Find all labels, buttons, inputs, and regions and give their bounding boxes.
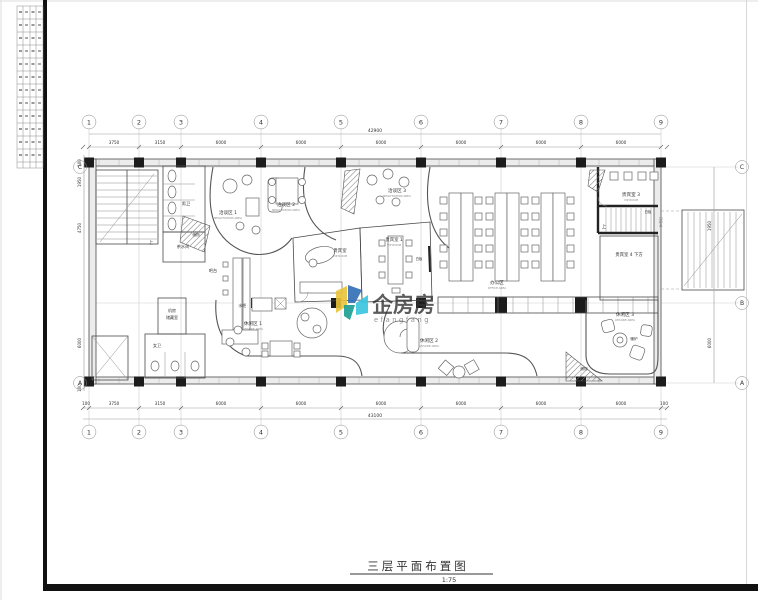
dim-bottom-segment: 6000 — [456, 401, 467, 406]
label-negotiation-2-en: NEGOTIATION AREA — [272, 208, 300, 212]
label-storage-a: 储物 — [192, 232, 200, 237]
grid-bubble-label: 6 — [419, 428, 423, 436]
elevator — [92, 336, 128, 380]
sheet-title-group: 三层平面布置图 1:75 — [350, 559, 493, 584]
wall-left — [89, 159, 96, 384]
grid-bubble-label: 4 — [259, 118, 263, 126]
title-block-text-mark — [32, 89, 35, 91]
title-block-text-mark — [32, 11, 35, 13]
label-vip-room-3-en: VIP ROOM — [624, 198, 639, 202]
dim-bottom-segment: 6000 — [376, 401, 387, 406]
title-block — [17, 6, 43, 168]
label-vip-room-1: 贵宾室 1 — [385, 236, 403, 243]
grid-bubble-label: 9 — [659, 428, 663, 436]
title-block-text-mark — [25, 154, 28, 156]
title-block-text-mark — [32, 115, 35, 117]
title-block-text-mark — [19, 50, 22, 52]
stair-left — [96, 170, 158, 244]
label-negotiation-3: 洽谈区 3 — [388, 187, 406, 194]
wall-top — [89, 159, 661, 166]
title-block-text-mark — [38, 141, 41, 143]
dim-right-0: 1950 — [707, 220, 712, 231]
title-block-text-mark — [32, 102, 35, 104]
row-bubble-a-left: A — [78, 380, 83, 387]
label-office-area: 办公区 — [490, 279, 504, 286]
title-block-text-mark — [38, 37, 41, 39]
title-block-text-mark — [19, 154, 22, 156]
title-block-text-mark — [19, 63, 22, 65]
title-block-text-mark — [38, 76, 41, 78]
dim-left-1: 1950 — [77, 176, 82, 187]
grid-bubble-label: 4 — [259, 428, 263, 436]
dim-top-segment: 6000 — [296, 140, 307, 145]
label-vip-room-1-en: VIP ROOM — [387, 243, 402, 247]
title-block-text-mark — [38, 115, 41, 117]
dim-bottom-segment: 3150 — [155, 401, 166, 406]
title-block-text-mark — [19, 141, 22, 143]
dim-bottom-segment: 3750 — [109, 401, 120, 406]
title-block-text-mark — [25, 102, 28, 104]
title-block-text-mark — [38, 154, 41, 156]
title-block-text-mark — [38, 128, 41, 130]
label-office-area-en: OFFICE AREA — [488, 286, 506, 290]
grid-bubble-label: 5 — [339, 428, 343, 436]
stair-annex — [661, 210, 744, 290]
title-block-text-mark — [32, 37, 35, 39]
title-block-text-mark — [25, 89, 28, 91]
label-leisure-3-en: LEISURE AREA — [615, 318, 635, 322]
female-toilet — [145, 334, 205, 378]
grid-bubble-label: 7 — [499, 428, 503, 436]
title-block-text-mark — [38, 63, 41, 65]
title-block-text-mark — [19, 11, 22, 13]
grid-bubble-label: 8 — [579, 118, 583, 126]
title-block-text-mark — [32, 76, 35, 78]
label-leisure-1: 休闲区 1 — [244, 320, 262, 327]
dim-top-segment: 6000 — [456, 140, 467, 145]
title-block-text-mark — [25, 37, 28, 39]
dim-top-segment: 6000 — [216, 140, 227, 145]
watermark: 企房房 efangfang — [336, 285, 435, 324]
planter-wedge — [341, 169, 360, 214]
title-block-text-mark — [19, 37, 22, 39]
label-storage-room: 储藏室 — [166, 314, 178, 320]
sheet-border-bottom — [43, 584, 758, 591]
label-tea-room: 茶水间 — [177, 243, 190, 250]
dim-bottom-total: 43100 — [368, 413, 382, 419]
dim-top-segment: 6000 — [536, 140, 547, 145]
title-block-text-mark — [38, 102, 41, 104]
label-vip-room: 贵宾室 — [333, 247, 347, 254]
dim-bottom-segment: 6000 — [536, 401, 547, 406]
grid-bubble-label: 3 — [179, 118, 183, 126]
floor-plan — [84, 158, 744, 387]
label-vip-room-en: VIP ROOM — [333, 254, 348, 258]
label-leisure-2-en: LEISURE AREA — [419, 344, 439, 348]
row-bubble-b-right: B — [740, 300, 744, 307]
title-block-text-mark — [32, 128, 35, 130]
dim-top-segment: 3150 — [155, 140, 166, 145]
grid-bubble-label: 1 — [87, 118, 91, 126]
label-up-1: 上 — [149, 239, 154, 246]
label-negotiation-2: 洽谈区 2 — [277, 201, 295, 208]
grid-bubble-label: 8 — [579, 428, 583, 436]
dim-left-3: 6000 — [77, 337, 82, 348]
title-block-text-mark — [32, 154, 35, 156]
title-block-text-mark — [25, 50, 28, 52]
title-block-text-mark — [19, 89, 22, 91]
sheet-border-left — [43, 0, 47, 591]
whiteboard — [429, 246, 430, 272]
drawing-viewer: { "sheet": { "title": "三层平面布置图", "scale"… — [0, 0, 758, 600]
watermark-logo-blade-teal — [344, 305, 355, 320]
title-block-text-mark — [38, 50, 41, 52]
label-vip-room-3: 贵宾室 3 — [622, 191, 640, 198]
grid-bubble-label: 1 — [87, 428, 91, 436]
dim-left-2: 4750 — [77, 222, 82, 233]
sheet-scale: 1:75 — [442, 576, 457, 584]
grid-bubble-label: 9 — [659, 118, 663, 126]
leisure-area-2 — [384, 318, 479, 378]
title-block-text-mark — [25, 63, 28, 65]
label-vip4-below: 贵宾室 4 下方 — [615, 251, 643, 258]
bar-counter — [222, 258, 286, 344]
label-fireplace: 暖炉 — [630, 336, 638, 341]
label-rest-area: 休憩区 — [658, 216, 663, 227]
grid-bubble-label: 6 — [419, 118, 423, 126]
dim-top-total: 42900 — [368, 128, 382, 134]
grid-bubble-label: 3 — [179, 428, 183, 436]
dim-bottom-segment: 6000 — [216, 401, 227, 406]
dim-bottom-segment: 100 — [82, 401, 90, 406]
row-bubble-c-left: C — [78, 164, 82, 171]
title-block-text-mark — [25, 128, 28, 130]
label-leisure-1-en: LEISURE AREA — [243, 327, 263, 331]
label-negotiation-3-en: NEGOTIATION AREA — [383, 194, 411, 198]
title-block-text-mark — [38, 11, 41, 13]
label-negotiation-1: 洽谈区 1 — [219, 209, 237, 216]
label-male-wc: 男卫 — [182, 201, 190, 207]
label-leisure-2: 休闲区 2 — [420, 337, 438, 344]
title-block-text-mark — [19, 115, 22, 117]
label-bar: 吧台 — [209, 267, 217, 274]
title-block-text-mark — [19, 76, 22, 78]
label-machine-room: 机房 — [168, 307, 176, 313]
title-block-text-mark — [32, 50, 35, 52]
title-block-text-mark — [25, 11, 28, 13]
watermark-brand-text: 企房房 — [371, 293, 435, 317]
title-block-text-mark — [32, 24, 35, 26]
grid-bubble-label: 7 — [499, 118, 503, 126]
label-leisure-3: 休闲区 3 — [616, 311, 634, 318]
label-negotiation-1-en: NEGOTIATION AREA — [214, 216, 242, 220]
dim-top-segment: 6000 — [616, 140, 627, 145]
watermark-sub-text: efangfang — [374, 316, 431, 324]
dim-right-1: 6000 — [707, 337, 712, 348]
title-block-text-mark — [25, 24, 28, 26]
grid-bubble-label: 2 — [137, 428, 141, 436]
dim-bottom-segment: 6000 — [296, 401, 307, 406]
label-whiteboard-2: 白板 — [645, 209, 652, 214]
grid-bubble-label: 2 — [137, 118, 141, 126]
negotiation-area-3 — [367, 169, 409, 206]
label-up-2: 上 — [602, 223, 607, 230]
title-block-text-mark — [38, 89, 41, 91]
title-block-text-mark — [38, 24, 41, 26]
dim-bottom-segment: 100 — [660, 401, 668, 406]
title-block-text-mark — [25, 141, 28, 143]
sheet-title: 三层平面布置图 — [367, 559, 469, 573]
grid-bubble-label: 5 — [339, 118, 343, 126]
row-bubble-c-right: C — [740, 164, 744, 171]
title-block-text-mark — [25, 76, 28, 78]
row-bubble-a-right: A — [740, 380, 745, 387]
label-whiteboard-1: 白板 — [416, 256, 423, 261]
title-block-text-mark — [19, 128, 22, 130]
title-block-text-mark — [19, 24, 22, 26]
floor-plan-sheet: 112233445566778899 375031506000600060006… — [0, 0, 758, 600]
label-storage-b: 储物 — [580, 366, 588, 371]
dim-bottom-segment: 6000 — [616, 401, 627, 406]
label-water-bar: 水吧 — [238, 303, 246, 308]
title-block-text-mark — [19, 102, 22, 104]
cabinet-row — [438, 297, 658, 313]
label-female-wc: 女卫 — [153, 342, 161, 348]
title-block-text-mark — [32, 63, 35, 65]
title-block-text-mark — [32, 141, 35, 143]
dim-top-segment: 6000 — [376, 140, 387, 145]
dim-top-segment: 3750 — [109, 140, 120, 145]
void-room — [600, 236, 658, 300]
title-block-text-mark — [25, 115, 28, 117]
